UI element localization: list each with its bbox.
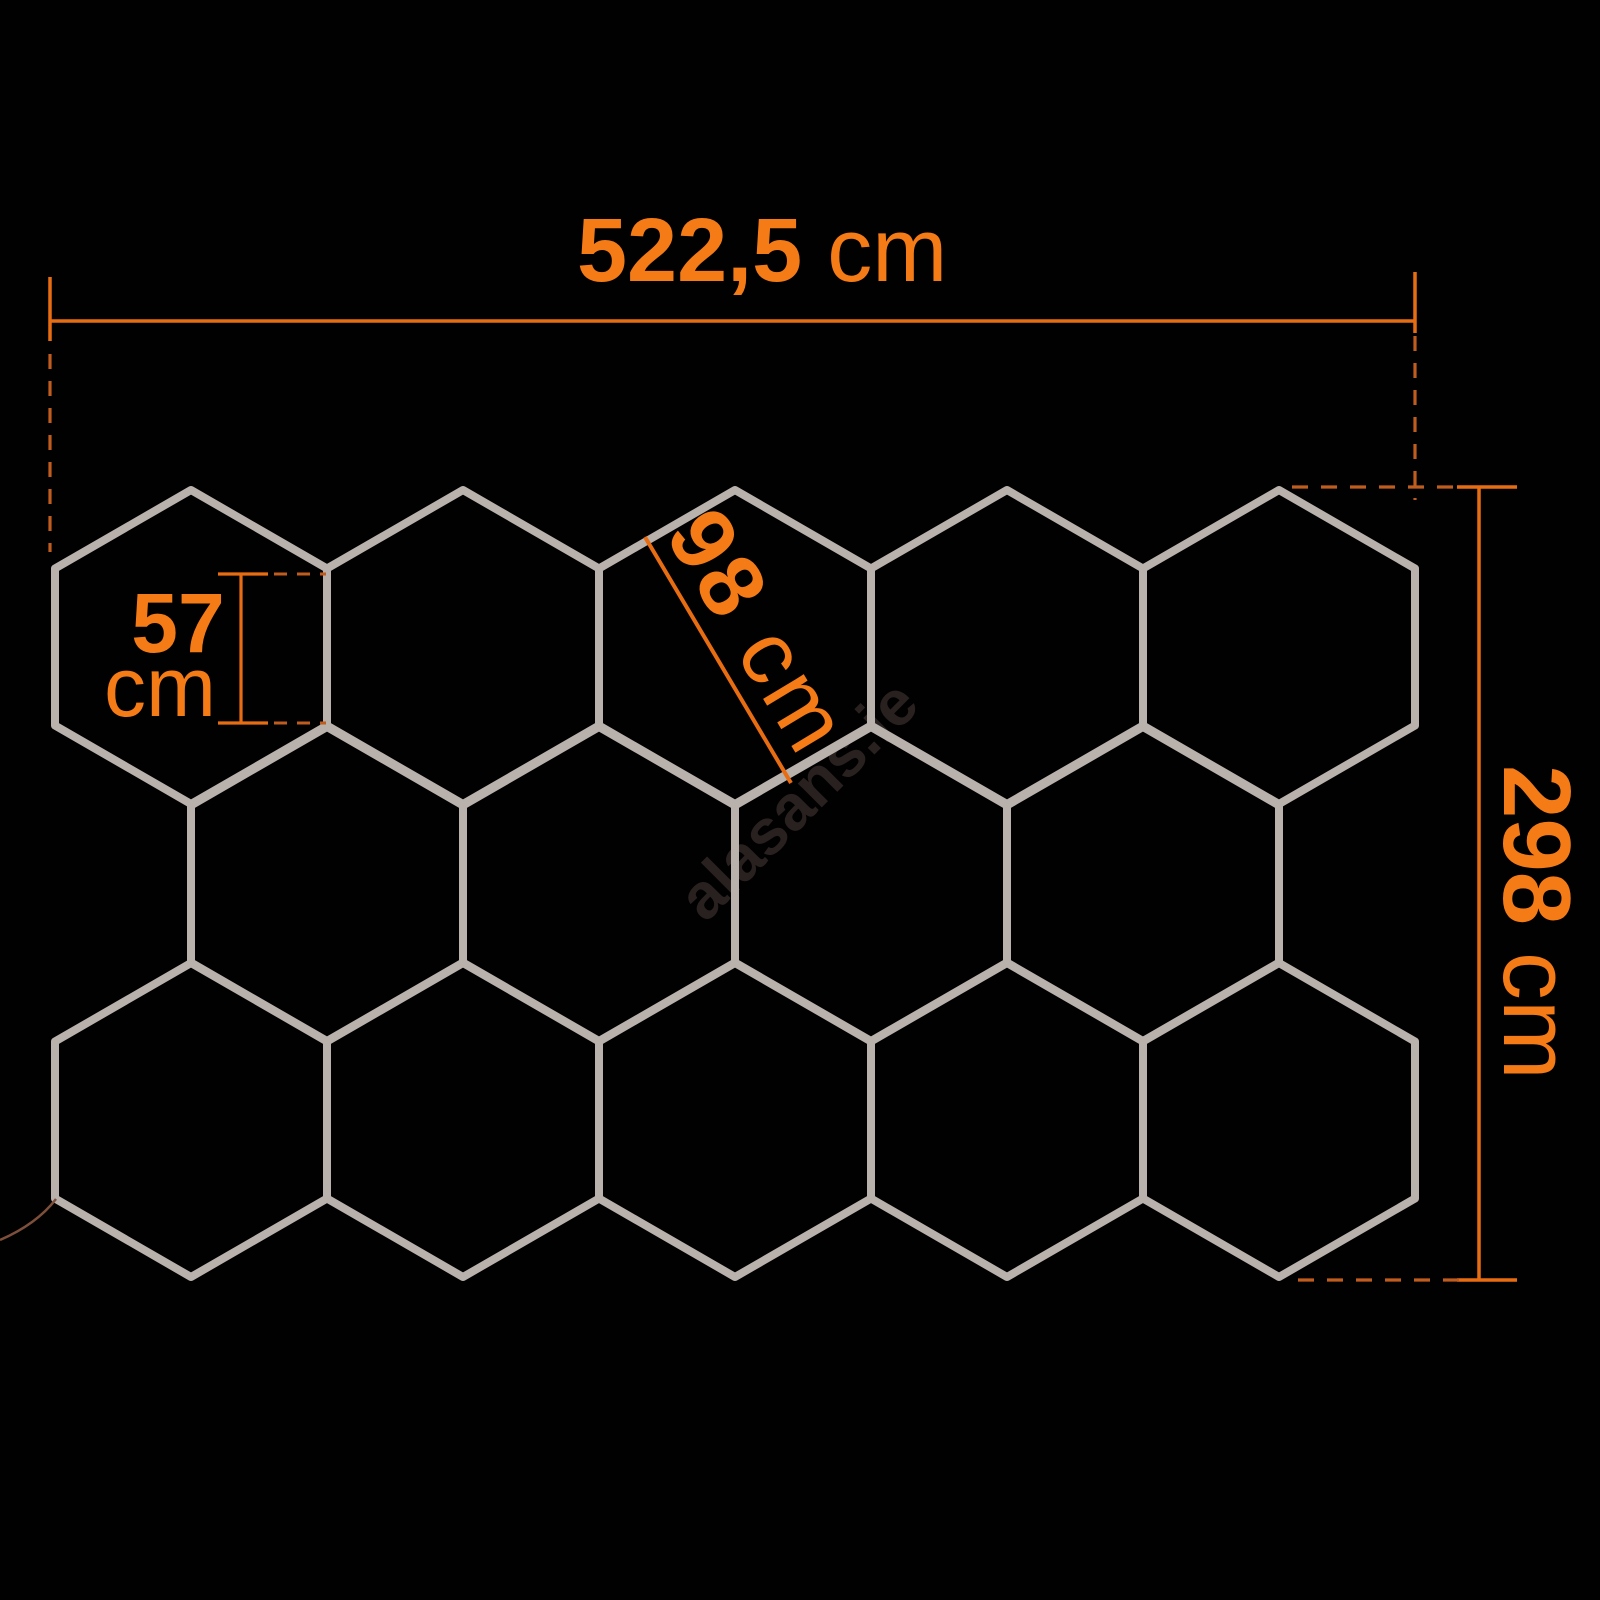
hex-side-unit: cm [104, 640, 216, 734]
diagram-stage: alasans.ie 522,5 cm 298 cm 57 cm [0, 0, 1600, 1600]
width-value: 522,5 [577, 201, 802, 301]
width-unit: cm [827, 201, 947, 301]
dimension-label-height: 298 cm [1483, 765, 1590, 1080]
height-value: 298 [1483, 765, 1590, 925]
height-unit: cm [1483, 952, 1590, 1080]
dimension-label-width: 522,5 cm [577, 201, 947, 301]
hexagon-grid-dimension-diagram: alasans.ie 522,5 cm 298 cm 57 cm [0, 0, 1600, 1600]
